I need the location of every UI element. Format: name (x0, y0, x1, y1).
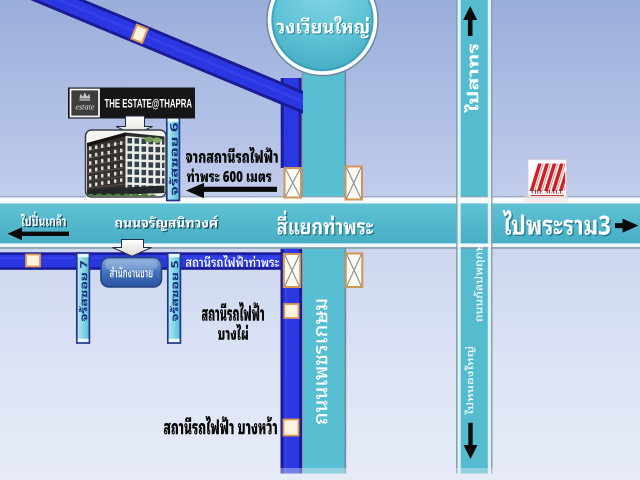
svg-text:THE ESTATE@THAPRA: THE ESTATE@THAPRA (105, 98, 193, 111)
svg-text:THE MALL: THE MALL (530, 190, 563, 196)
svg-text:estate: estate (75, 103, 94, 112)
